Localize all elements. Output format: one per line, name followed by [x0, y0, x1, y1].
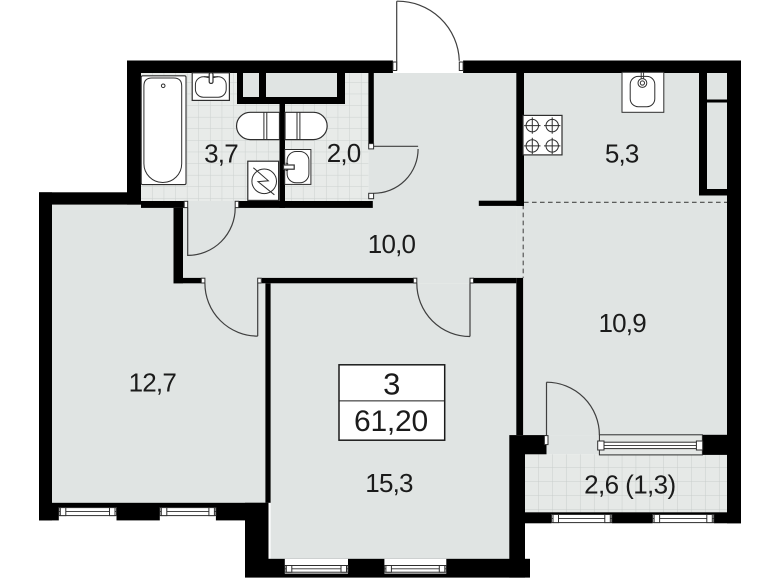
svg-text:15,3: 15,3 [365, 468, 413, 498]
svg-text:10,0: 10,0 [368, 229, 416, 259]
svg-text:5,3: 5,3 [605, 139, 639, 169]
svg-text:10,9: 10,9 [598, 308, 646, 338]
svg-text:3: 3 [383, 366, 400, 401]
svg-text:3,7: 3,7 [204, 138, 238, 168]
svg-text:61,20: 61,20 [354, 405, 428, 438]
svg-text:2,0: 2,0 [327, 138, 361, 168]
svg-text:2,6 (1,3): 2,6 (1,3) [584, 469, 675, 499]
svg-text:12,7: 12,7 [129, 368, 177, 398]
